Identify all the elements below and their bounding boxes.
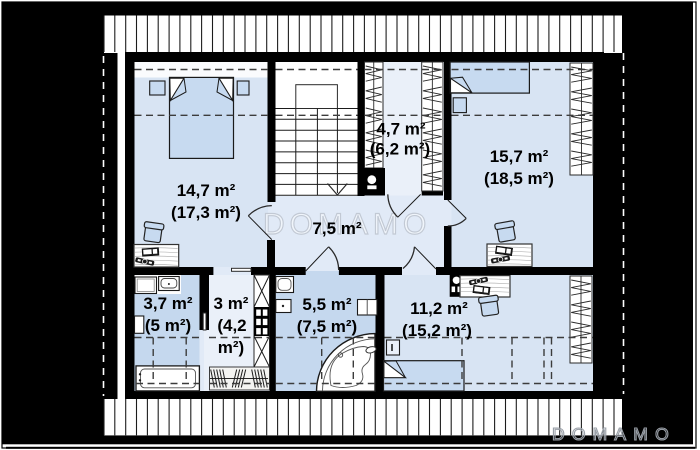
svg-text:(5 m²): (5 m²) xyxy=(145,316,191,335)
svg-text:DOMAMO: DOMAMO xyxy=(552,424,676,444)
svg-text:(6,2 m²): (6,2 m²) xyxy=(370,140,430,159)
svg-text:(17,3 m²): (17,3 m²) xyxy=(171,203,241,222)
svg-text:3 m²: 3 m² xyxy=(214,294,249,313)
svg-text:3,7 m²: 3,7 m² xyxy=(143,294,192,313)
svg-text:m²): m²) xyxy=(218,338,244,357)
svg-text:14,7 m²: 14,7 m² xyxy=(177,181,236,200)
svg-text:15,7 m²: 15,7 m² xyxy=(490,147,549,166)
svg-text:7,5 m²: 7,5 m² xyxy=(312,219,361,238)
svg-text:4,7 m²: 4,7 m² xyxy=(376,120,425,139)
svg-text:(15,2 m²): (15,2 m²) xyxy=(402,321,472,340)
svg-text:11,2 m²: 11,2 m² xyxy=(410,299,468,318)
svg-text:(7,5 m²): (7,5 m²) xyxy=(297,317,357,336)
svg-text:5,5 m²: 5,5 m² xyxy=(302,295,351,314)
svg-text:(18,5 m²): (18,5 m²) xyxy=(484,169,554,188)
svg-text:(4,2: (4,2 xyxy=(217,316,246,335)
